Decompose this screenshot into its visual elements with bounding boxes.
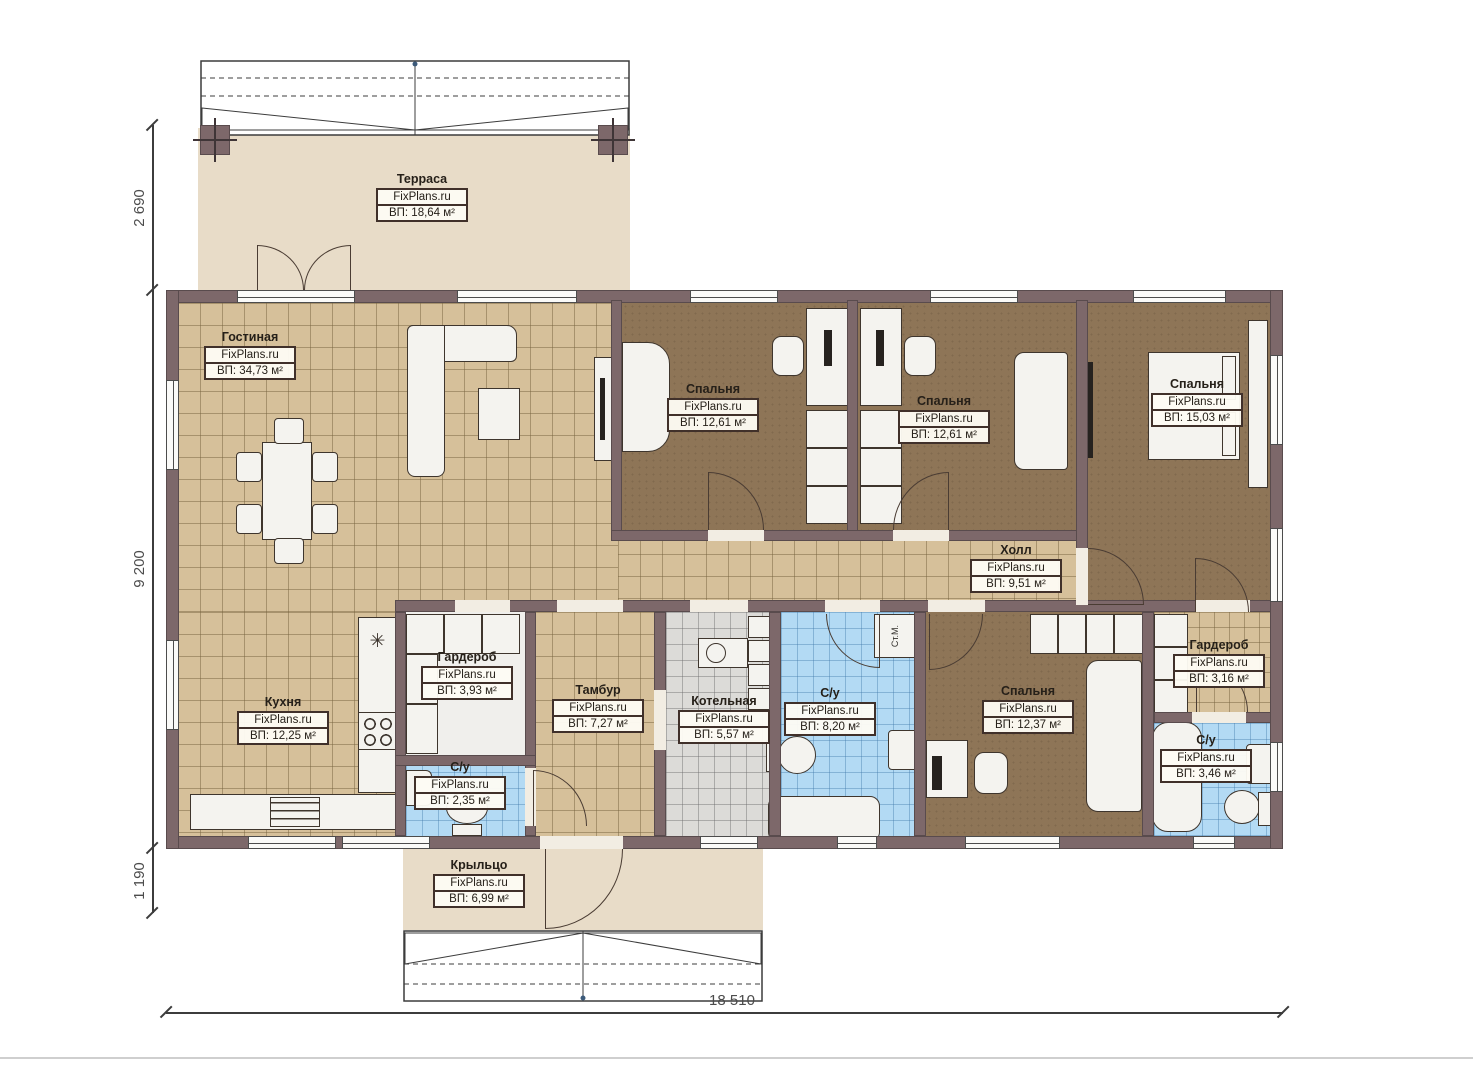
room-area: ВП: 8,20 м²	[786, 720, 874, 734]
room-title: Гардероб	[437, 650, 496, 664]
wardrobe-cells	[1086, 614, 1114, 654]
door-opening	[1076, 548, 1088, 605]
room-title: Терраса	[397, 172, 447, 186]
label-bath2: С/у FixPlans.ruВП: 3,46 м²	[1158, 733, 1254, 783]
window	[1133, 290, 1226, 303]
office-chair	[974, 752, 1008, 794]
room-area: ВП: 12,25 м²	[239, 729, 327, 743]
post-crosshair	[612, 118, 614, 162]
dimension-left-bottom: 1 190	[131, 859, 149, 903]
wardrobe-cells	[860, 448, 902, 486]
window	[965, 836, 1060, 849]
wardrobe-cells	[406, 704, 438, 754]
wall	[611, 530, 1077, 541]
room-area: ВП: 2,35 м²	[416, 794, 504, 808]
brand-link: FixPlans.ru	[900, 412, 988, 428]
door-opening	[540, 836, 623, 849]
wardrobe-cells	[1030, 614, 1058, 654]
boiler-dial	[706, 643, 726, 663]
wardrobe	[1248, 320, 1268, 488]
room-title: С/у	[1196, 733, 1215, 747]
dimension-line	[152, 125, 154, 913]
chair	[274, 538, 304, 564]
window	[1270, 742, 1283, 792]
room-area: ВП: 7,27 м²	[554, 717, 642, 731]
label-bedroom3: Спальня FixPlans.ruВП: 15,03 м²	[1149, 377, 1245, 427]
monitor	[824, 330, 832, 366]
room-area: ВП: 34,73 м²	[206, 364, 294, 378]
label-kitchen: Кухня FixPlans.ruВП: 12,25 м²	[235, 695, 331, 745]
door-opening	[825, 600, 880, 612]
room-title: Спальня	[686, 382, 740, 396]
terrace-awning	[200, 60, 630, 136]
room-title: Котельная	[691, 694, 756, 708]
room-area: ВП: 18,64 м²	[378, 206, 466, 220]
stove	[358, 712, 397, 750]
brand-link: FixPlans.ru	[786, 704, 874, 720]
room-area: ВП: 3,46 м²	[1162, 767, 1250, 781]
label-bedroom1: Спальня FixPlans.ruВП: 12,61 м²	[665, 382, 761, 432]
shelf	[748, 664, 770, 686]
door-opening	[708, 530, 764, 541]
wall	[847, 300, 858, 532]
door-opening	[1192, 712, 1246, 723]
label-terrace: Терраса FixPlans.ruВП: 18,64 м²	[374, 172, 470, 222]
shelf	[748, 640, 770, 662]
window	[1270, 528, 1283, 602]
wall	[395, 612, 406, 836]
label-bedroom4: Спальня FixPlans.ruВП: 12,37 м²	[980, 684, 1076, 734]
brand-link: FixPlans.ru	[972, 561, 1060, 577]
window	[700, 836, 758, 849]
label-hall: Холл FixPlans.ruВП: 9,51 м²	[968, 543, 1064, 593]
window	[1270, 355, 1283, 445]
wardrobe-cells	[406, 614, 444, 654]
room-area: ВП: 6,99 м²	[435, 892, 523, 906]
room-title: С/у	[450, 760, 469, 774]
chair	[312, 452, 338, 482]
shelf	[748, 616, 770, 638]
chair	[236, 504, 262, 534]
room-title: Спальня	[1001, 684, 1055, 698]
brand-link: FixPlans.ru	[1162, 751, 1250, 767]
label-vestibule: Тамбур FixPlans.ruВП: 7,27 м²	[550, 683, 646, 733]
wall	[611, 300, 622, 532]
room-area: ВП: 12,61 м²	[900, 428, 988, 442]
room-area: ВП: 5,57 м²	[680, 728, 768, 742]
office-chair	[904, 336, 936, 376]
wardrobe-cells	[482, 614, 520, 654]
label-porch: Крыльцо FixPlans.ruВП: 6,99 м²	[431, 858, 527, 908]
door-opening	[654, 690, 666, 750]
window	[166, 380, 179, 470]
label-wardrobe1: Гардероб FixPlans.ruВП: 3,93 м²	[419, 650, 515, 700]
label-bedroom2: Спальня FixPlans.ruВП: 12,61 м²	[896, 394, 992, 444]
window	[237, 290, 355, 303]
wall	[1142, 612, 1154, 836]
label-bath-small: С/у FixPlans.ruВП: 2,35 м²	[412, 760, 508, 810]
room-title: Спальня	[1170, 377, 1224, 391]
label-living: Гостиная FixPlans.ruВП: 34,73 м²	[202, 330, 298, 380]
wall	[914, 612, 926, 836]
window	[930, 290, 1018, 303]
chair	[236, 452, 262, 482]
page-divider	[0, 1057, 1473, 1059]
window	[248, 836, 336, 849]
sofa	[1014, 352, 1068, 470]
wardrobe-cells	[806, 410, 848, 448]
washing-machine-label: Ст.М.	[874, 614, 916, 658]
wardrobe-cells	[444, 614, 482, 654]
window	[342, 836, 430, 849]
fridge	[270, 797, 320, 827]
wardrobe-cells	[806, 486, 848, 524]
brand-link: FixPlans.ru	[1153, 395, 1241, 411]
toilet	[778, 736, 816, 774]
toilet	[452, 824, 482, 836]
monitor	[876, 330, 884, 366]
room-area: ВП: 12,37 м²	[984, 718, 1072, 732]
brand-link: FixPlans.ru	[416, 778, 504, 794]
window	[690, 290, 778, 303]
tv	[600, 378, 605, 440]
wardrobe-cells	[806, 448, 848, 486]
dimension-bottom: 18 510	[696, 992, 768, 1010]
label-bath-main: С/у FixPlans.ruВП: 8,20 м²	[782, 686, 878, 736]
room-title: Кухня	[265, 695, 302, 709]
window	[457, 290, 577, 303]
room-title: Крыльцо	[451, 858, 508, 872]
brand-link: FixPlans.ru	[984, 702, 1072, 718]
brand-link: FixPlans.ru	[239, 713, 327, 729]
wardrobe-cells	[1114, 614, 1143, 654]
floor-plan: ✳ Ст.М.	[0, 0, 1473, 1080]
dimension-left-middle: 9 200	[131, 547, 149, 591]
window	[1193, 836, 1235, 849]
bed	[622, 342, 670, 452]
monitor	[932, 756, 942, 790]
brand-link: FixPlans.ru	[554, 701, 642, 717]
room-area: ВП: 12,61 м²	[669, 416, 757, 430]
room-area: ВП: 9,51 м²	[972, 577, 1060, 591]
post-crosshair	[214, 118, 216, 162]
door-opening	[928, 600, 985, 612]
brand-link: FixPlans.ru	[669, 400, 757, 416]
label-boiler: Котельная FixPlans.ruВП: 5,57 м²	[676, 694, 772, 744]
room-area: ВП: 3,93 м²	[423, 684, 511, 698]
chair	[312, 504, 338, 534]
corner-sofa	[407, 325, 445, 477]
toilet	[1224, 790, 1260, 824]
brand-link: FixPlans.ru	[378, 190, 466, 206]
room-title: Холл	[1000, 543, 1031, 557]
door-opening	[690, 600, 748, 612]
room-title: С/у	[820, 686, 839, 700]
brand-link: FixPlans.ru	[1175, 656, 1263, 672]
room-title: Гостиная	[222, 330, 279, 344]
sofa	[1086, 660, 1142, 812]
room-area: ВП: 3,16 м²	[1175, 672, 1263, 686]
room-area: ВП: 15,03 м²	[1153, 411, 1241, 425]
hob-symbol: ✳	[358, 630, 397, 660]
dimension-left-top: 2 690	[131, 186, 149, 230]
wardrobe-cells	[1058, 614, 1086, 654]
brand-link: FixPlans.ru	[680, 712, 768, 728]
label-wardrobe2: Гардероб FixPlans.ruВП: 3,16 м²	[1171, 638, 1267, 688]
brand-link: FixPlans.ru	[423, 668, 511, 684]
room-title: Гардероб	[1189, 638, 1248, 652]
door-opening	[893, 530, 949, 541]
door-opening	[455, 600, 510, 612]
window	[166, 640, 179, 730]
room-title: Тамбур	[575, 683, 620, 697]
dimension-line	[166, 1012, 1283, 1014]
chair	[274, 418, 304, 444]
brand-link: FixPlans.ru	[435, 876, 523, 892]
door-opening	[557, 600, 623, 612]
wall	[166, 290, 179, 849]
room-title: Спальня	[917, 394, 971, 408]
window	[837, 836, 877, 849]
sink	[888, 730, 916, 770]
coffee-table	[478, 388, 520, 440]
dining-table	[262, 442, 312, 540]
office-chair	[772, 336, 804, 376]
brand-link: FixPlans.ru	[206, 348, 294, 364]
